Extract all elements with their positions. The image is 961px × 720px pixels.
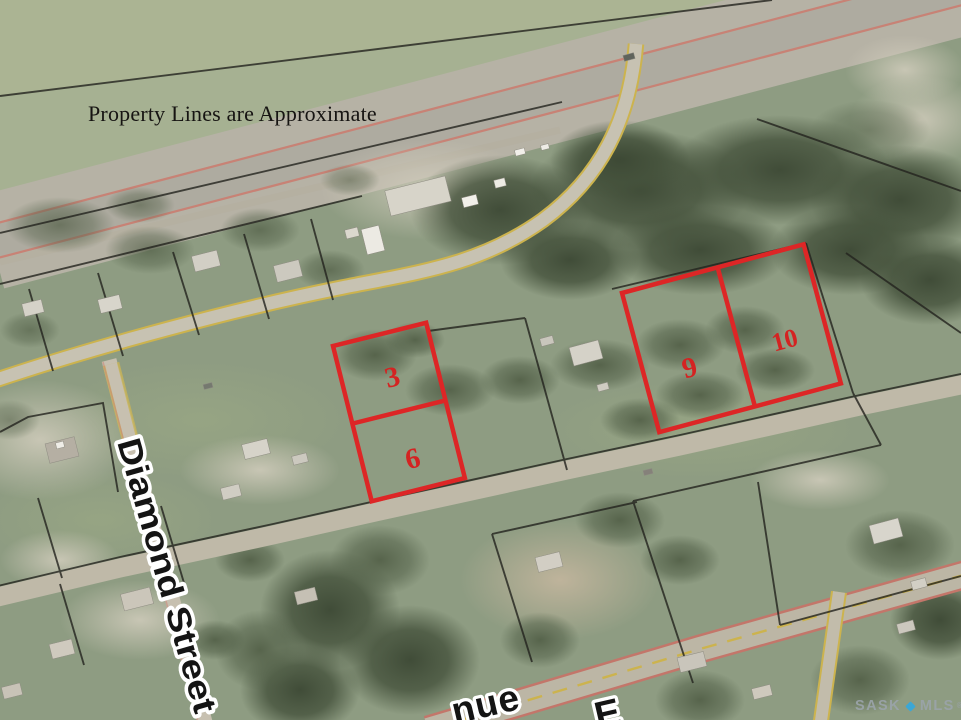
watermark-registered-symbol: ® — [957, 702, 961, 710]
aerial-property-map: 3 6 9 10 Diamond Street nue E Property L… — [0, 0, 961, 720]
watermark-sask-text: SASK — [855, 699, 901, 714]
watermark-mls-text: MLS — [920, 699, 955, 714]
mls-diamond-icon — [905, 701, 916, 712]
disclaimer-text: Property Lines are Approximate — [88, 101, 377, 127]
saskmls-watermark: SASK MLS ® — [855, 699, 961, 714]
